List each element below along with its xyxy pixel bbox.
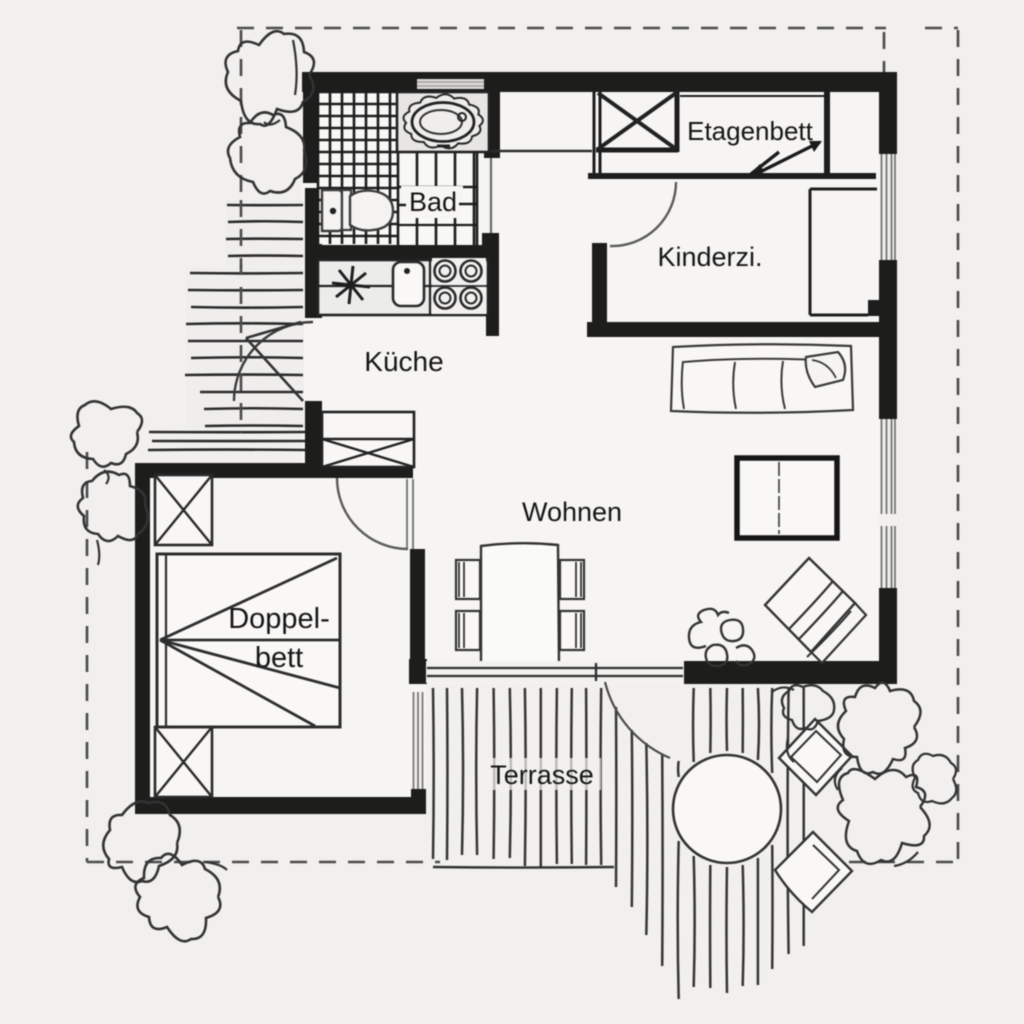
svg-text:Bad: Bad (409, 187, 457, 217)
svg-text:bett: bett (255, 642, 303, 674)
svg-text:Kinderzi.: Kinderzi. (657, 242, 762, 272)
svg-text:Etagenbett: Etagenbett (687, 116, 814, 146)
svg-text:Terrasse: Terrasse (490, 760, 594, 790)
svg-text:Wohnen: Wohnen (522, 497, 622, 527)
svg-text:Küche: Küche (364, 346, 443, 377)
svg-text:Doppel-: Doppel- (228, 603, 330, 635)
